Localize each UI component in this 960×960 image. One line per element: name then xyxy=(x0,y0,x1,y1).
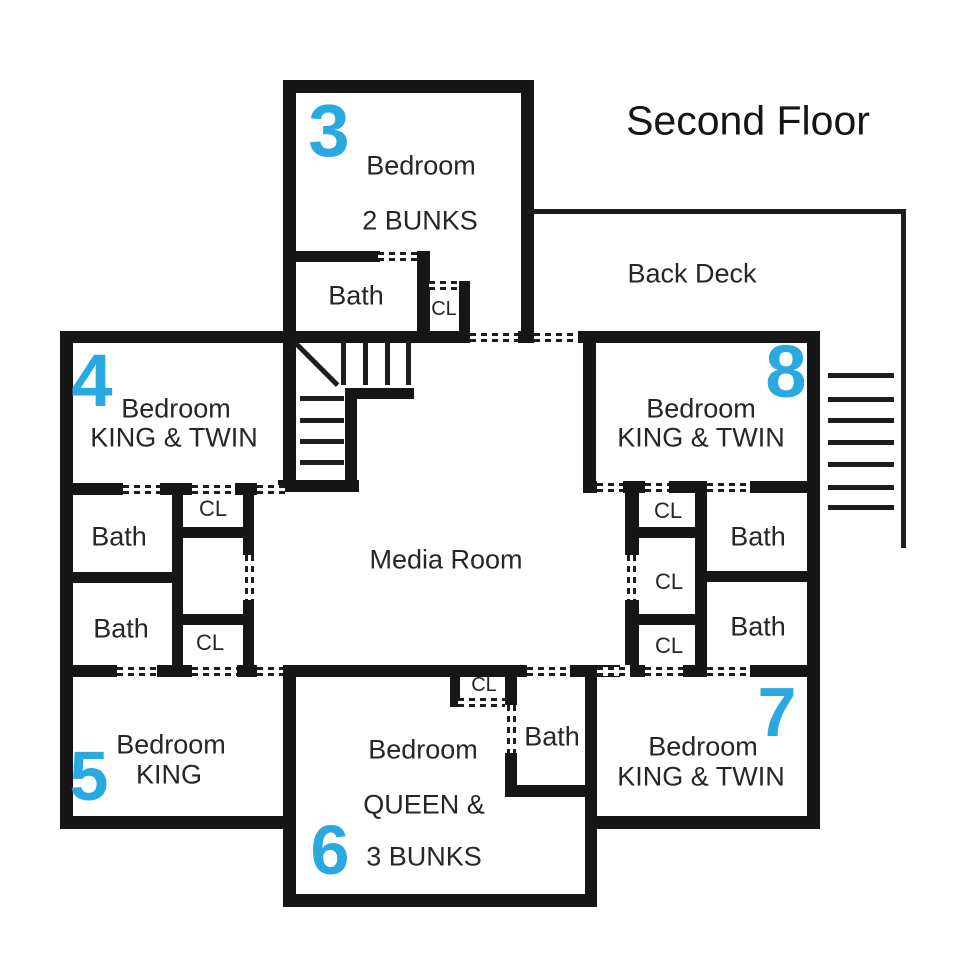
wall xyxy=(625,527,707,538)
stair-tread xyxy=(828,505,894,510)
door-opening xyxy=(507,705,516,753)
stair-tread xyxy=(406,341,411,385)
door-opening xyxy=(458,698,505,707)
page-title: Second Floor xyxy=(626,101,870,142)
wall xyxy=(505,785,597,797)
wall xyxy=(583,331,596,493)
bedroom-7-number: 7 xyxy=(758,677,797,747)
bedroom-3-label: Bedroom xyxy=(366,153,476,180)
wall xyxy=(625,614,707,625)
bedroom-7-beds: KING & TWIN xyxy=(617,764,785,791)
stair-tread xyxy=(828,462,894,467)
wall xyxy=(625,481,639,555)
wall xyxy=(243,600,254,665)
closet-label: CL xyxy=(471,675,497,695)
wall xyxy=(172,614,253,625)
closet-label: CL xyxy=(196,632,224,654)
bedroom-6-beds-line1: QUEEN & xyxy=(363,792,485,819)
bedroom-8-number: 8 xyxy=(765,335,806,409)
bedroom-8-beds: KING & TWIN xyxy=(617,425,785,452)
stair-tread xyxy=(300,396,344,401)
wall xyxy=(750,481,820,493)
door-opening xyxy=(429,281,462,290)
wall xyxy=(630,665,645,677)
door-opening xyxy=(257,667,284,676)
stair-tread xyxy=(828,397,894,402)
deck-wall xyxy=(528,209,906,214)
bath-label: Bath xyxy=(91,524,147,551)
door-opening xyxy=(192,485,235,494)
wall xyxy=(625,600,639,665)
stair-tread xyxy=(341,341,346,385)
wall xyxy=(417,251,430,341)
stair-tread xyxy=(828,418,894,423)
wall xyxy=(283,251,380,262)
wall xyxy=(683,665,707,677)
bedroom-6-number: 6 xyxy=(311,815,350,885)
bedroom-7-label: Bedroom xyxy=(648,734,758,761)
door-opening xyxy=(257,485,285,494)
stair-tread xyxy=(828,485,894,490)
door-opening xyxy=(378,252,420,261)
wall xyxy=(585,665,597,907)
wall xyxy=(518,331,534,343)
bedroom-5-label: Bedroom xyxy=(116,732,226,759)
stair-tread xyxy=(363,341,368,385)
wall xyxy=(695,571,820,582)
bedroom-5-beds: KING xyxy=(136,762,202,789)
door-opening xyxy=(527,667,570,676)
bedroom-3-number: 3 xyxy=(308,94,349,168)
door-opening xyxy=(117,667,157,676)
wall xyxy=(283,894,597,907)
stair-tread xyxy=(828,440,894,445)
door-opening xyxy=(645,483,669,492)
wall xyxy=(60,665,117,677)
door-opening xyxy=(707,667,750,676)
bedroom-4-beds: KING & TWIN xyxy=(90,425,258,452)
bath-label: Bath xyxy=(93,616,149,643)
bath-label: Bath xyxy=(524,724,580,751)
stair-tread xyxy=(828,373,894,378)
bedroom-4-number: 4 xyxy=(71,344,112,418)
bedroom-8-label: Bedroom xyxy=(646,396,756,423)
closet-label: CL xyxy=(655,635,683,657)
door-opening xyxy=(245,555,254,600)
media-room-label: Media Room xyxy=(369,547,522,574)
stair-direction-line xyxy=(293,341,339,387)
closet-label: CL xyxy=(654,500,682,522)
deck-wall xyxy=(901,209,906,548)
back-deck-label: Back Deck xyxy=(627,261,756,288)
bedroom-3-beds: 2 BUNKS xyxy=(362,208,478,235)
stair-tread xyxy=(385,341,390,385)
closet-label: CL xyxy=(655,571,683,593)
door-opening xyxy=(123,485,160,494)
door-opening xyxy=(645,667,683,676)
wall xyxy=(283,331,296,492)
stair-tread xyxy=(300,460,344,465)
closet-label: CL xyxy=(199,498,227,520)
door-opening xyxy=(470,333,518,342)
bedroom-5-number: 5 xyxy=(70,741,109,811)
door-opening xyxy=(597,483,623,492)
door-opening xyxy=(192,667,237,676)
wall xyxy=(505,677,517,705)
bedroom-6-label: Bedroom xyxy=(368,737,478,764)
wall xyxy=(60,483,123,495)
bedroom-4-label: Bedroom xyxy=(121,396,231,423)
door-opening xyxy=(597,667,630,676)
wall xyxy=(157,665,192,677)
bedroom-6-beds-line2: 3 BUNKS xyxy=(366,844,482,871)
bath-label: Bath xyxy=(730,614,786,641)
bath-label: Bath xyxy=(730,524,786,551)
wall xyxy=(243,491,254,555)
wall xyxy=(283,80,296,338)
door-opening xyxy=(627,555,636,600)
floor-plan: Second Floor Back Deck xyxy=(0,0,960,960)
wall xyxy=(172,527,253,538)
wall xyxy=(237,665,257,677)
stair-tread xyxy=(300,418,344,423)
wall xyxy=(345,388,357,492)
wall xyxy=(60,816,296,829)
bath-label: Bath xyxy=(328,283,384,310)
wall xyxy=(60,572,182,583)
door-opening xyxy=(534,333,578,342)
wall xyxy=(585,816,820,829)
stair-tread xyxy=(300,439,344,444)
door-opening xyxy=(707,483,750,492)
closet-label: CL xyxy=(431,299,457,319)
wall xyxy=(585,481,597,493)
wall xyxy=(283,665,296,907)
